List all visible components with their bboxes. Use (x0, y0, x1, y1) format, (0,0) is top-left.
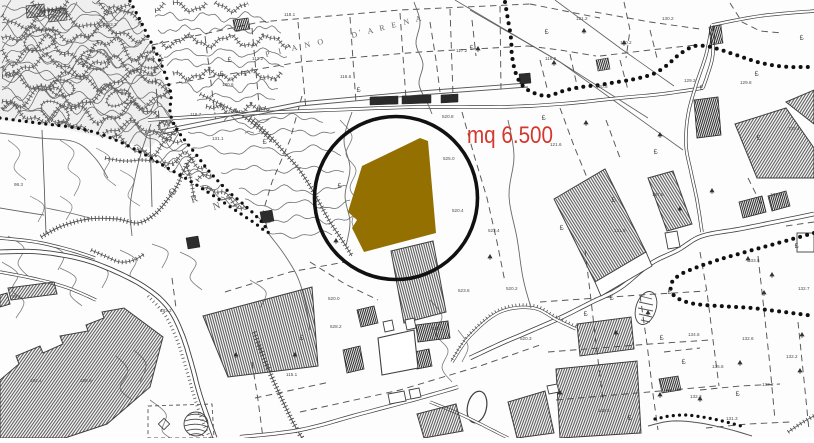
svg-text:104.4: 104.4 (30, 378, 42, 383)
svg-text:133.2: 133.2 (762, 382, 774, 387)
svg-text:132.7: 132.7 (798, 286, 810, 291)
svg-text:131.1: 131.1 (212, 136, 224, 141)
svg-text:528.2: 528.2 (330, 324, 342, 329)
svg-text:520.0: 520.0 (328, 296, 340, 301)
svg-text:132.2: 132.2 (786, 354, 798, 359)
svg-text:520.8: 520.8 (442, 114, 454, 119)
svg-text:132.6: 132.6 (742, 336, 754, 341)
svg-text:130.2: 130.2 (662, 16, 674, 21)
svg-text:528.2: 528.2 (432, 326, 444, 331)
svg-text:132.8: 132.8 (598, 408, 610, 413)
svg-text:118.6: 118.6 (545, 56, 557, 61)
svg-text:520.2: 520.2 (506, 286, 518, 291)
svg-text:118.1: 118.1 (284, 12, 296, 17)
svg-text:131.5: 131.5 (652, 192, 664, 197)
svg-text:523.4: 523.4 (488, 228, 500, 233)
svg-text:130.6: 130.6 (222, 82, 234, 87)
svg-text:100.9: 100.9 (80, 378, 92, 383)
svg-text:133.6: 133.6 (748, 258, 760, 263)
svg-text:135.6: 135.6 (712, 364, 724, 369)
svg-text:131.5: 131.5 (614, 228, 626, 233)
svg-text:103.3: 103.3 (105, 22, 117, 27)
svg-text:134.6: 134.6 (688, 332, 700, 337)
svg-text:183.2: 183.2 (160, 308, 172, 313)
svg-text:116.6: 116.6 (340, 74, 352, 79)
svg-text:520.3: 520.3 (520, 336, 532, 341)
svg-text:133.4: 133.4 (788, 126, 800, 131)
svg-text:525.0: 525.0 (443, 156, 455, 161)
svg-text:520.4: 520.4 (452, 208, 464, 213)
svg-text:115.1: 115.1 (286, 372, 298, 377)
svg-text:129.2: 129.2 (684, 78, 696, 83)
svg-text:mq 6.500: mq 6.500 (467, 122, 553, 149)
svg-text:129.8: 129.8 (740, 80, 752, 85)
svg-text:112.2: 112.2 (252, 56, 264, 61)
svg-text:119.7: 119.7 (190, 112, 202, 117)
svg-text:523.6: 523.6 (458, 288, 470, 293)
svg-text:120.8: 120.8 (596, 84, 608, 89)
svg-text:98.3: 98.3 (14, 182, 23, 187)
svg-text:98.2: 98.2 (12, 294, 21, 299)
svg-text:117.2: 117.2 (456, 48, 468, 53)
svg-text:134.0: 134.0 (770, 192, 782, 197)
svg-text:121.2: 121.2 (576, 16, 588, 21)
svg-text:131.3: 131.3 (726, 416, 738, 421)
